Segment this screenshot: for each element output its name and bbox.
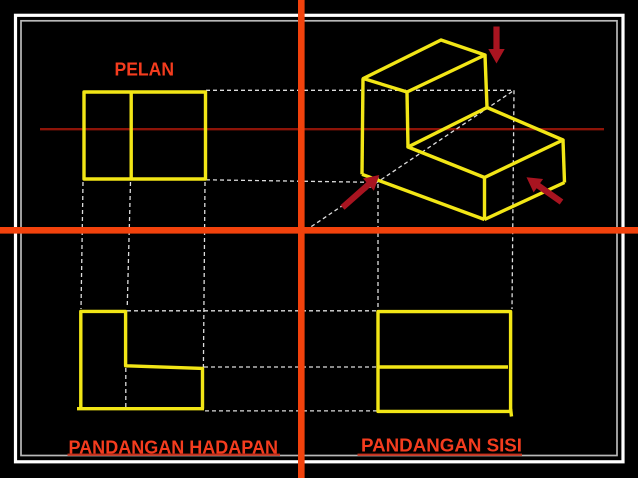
svg-text:PANDANGAN SISI: PANDANGAN SISI [361,436,522,456]
svg-text:PELAN: PELAN [115,59,175,79]
